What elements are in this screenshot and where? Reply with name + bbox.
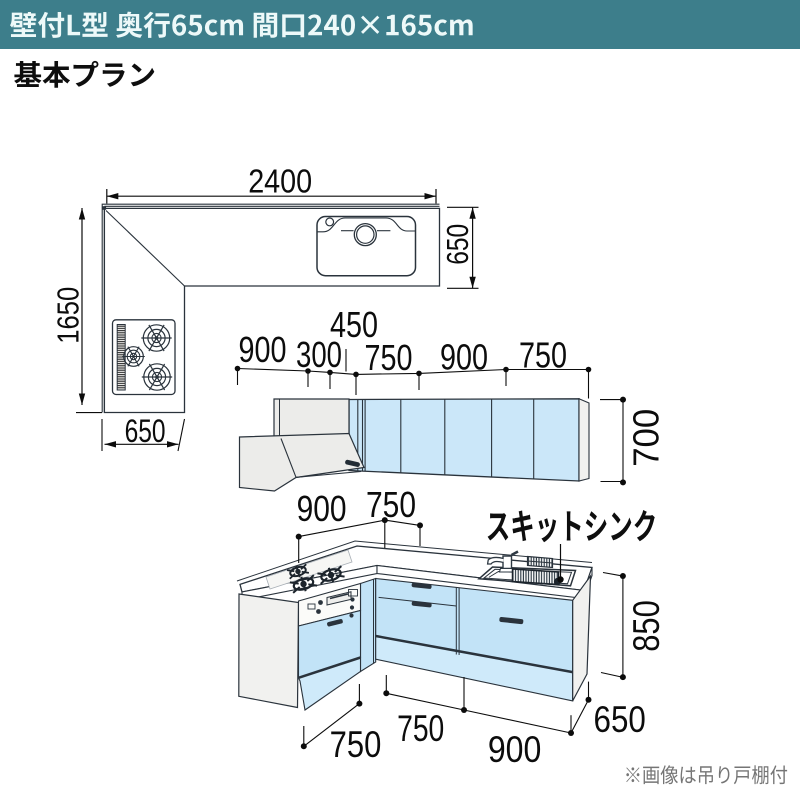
svg-text:750: 750	[397, 708, 444, 749]
svg-text:900: 900	[440, 337, 488, 378]
svg-text:900: 900	[297, 488, 347, 529]
svg-text:750: 750	[330, 724, 382, 765]
svg-text:1650: 1650	[51, 287, 86, 344]
svg-text:750: 750	[365, 337, 413, 378]
svg-text:650: 650	[440, 224, 475, 265]
svg-text:750: 750	[519, 335, 567, 376]
svg-text:2400: 2400	[248, 163, 312, 200]
svg-text:900: 900	[488, 729, 542, 770]
svg-text:650: 650	[125, 413, 166, 449]
svg-text:650: 650	[594, 699, 646, 740]
svg-text:700: 700	[626, 409, 667, 467]
svg-text:850: 850	[626, 600, 667, 652]
svg-text:900: 900	[239, 329, 287, 370]
svg-text:300: 300	[296, 334, 342, 375]
svg-text:750: 750	[366, 484, 416, 525]
